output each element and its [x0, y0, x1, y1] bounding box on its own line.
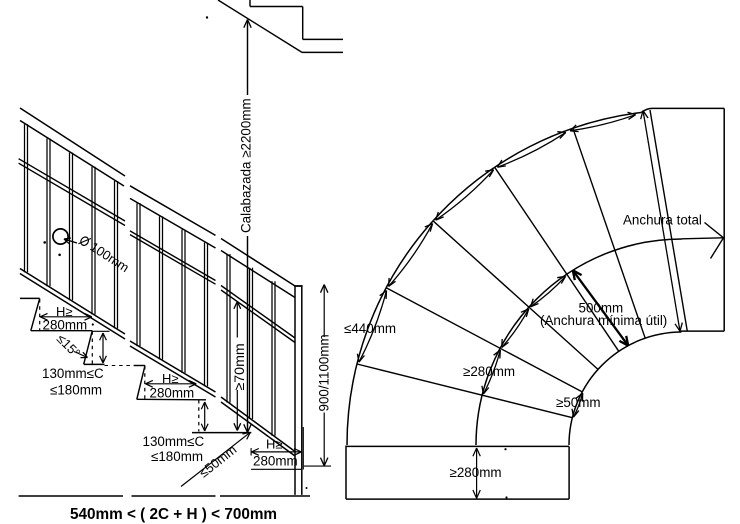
svg-text:280mm: 280mm: [150, 386, 195, 401]
svg-text:≤440mm: ≤440mm: [344, 321, 396, 336]
svg-text:130mm≤C: 130mm≤C: [143, 434, 205, 449]
svg-text:≥280mm: ≥280mm: [450, 465, 502, 480]
svg-text:Anchura total: Anchura total: [623, 213, 702, 228]
svg-text:900/1100mm: 900/1100mm: [317, 334, 332, 411]
svg-text:≥70mm: ≥70mm: [232, 343, 248, 390]
svg-text:≥50mm: ≥50mm: [556, 395, 601, 410]
svg-text:≥280mm: ≥280mm: [463, 364, 515, 379]
svg-text:130mm≤C: 130mm≤C: [42, 366, 104, 381]
svg-text:280mm: 280mm: [253, 454, 298, 469]
svg-text:Calabazada ≥2200mm: Calabazada ≥2200mm: [239, 98, 254, 233]
svg-text:≤180mm: ≤180mm: [50, 383, 102, 398]
svg-text:H≥: H≥: [162, 371, 179, 386]
svg-text:≤180mm: ≤180mm: [151, 449, 203, 464]
svg-text:H≥: H≥: [266, 437, 283, 452]
svg-text:(Anchura mínima útil): (Anchura mínima útil): [540, 313, 667, 328]
svg-text:540mm < ( 2C + H ) < 700mm: 540mm < ( 2C + H ) < 700mm: [70, 506, 277, 523]
